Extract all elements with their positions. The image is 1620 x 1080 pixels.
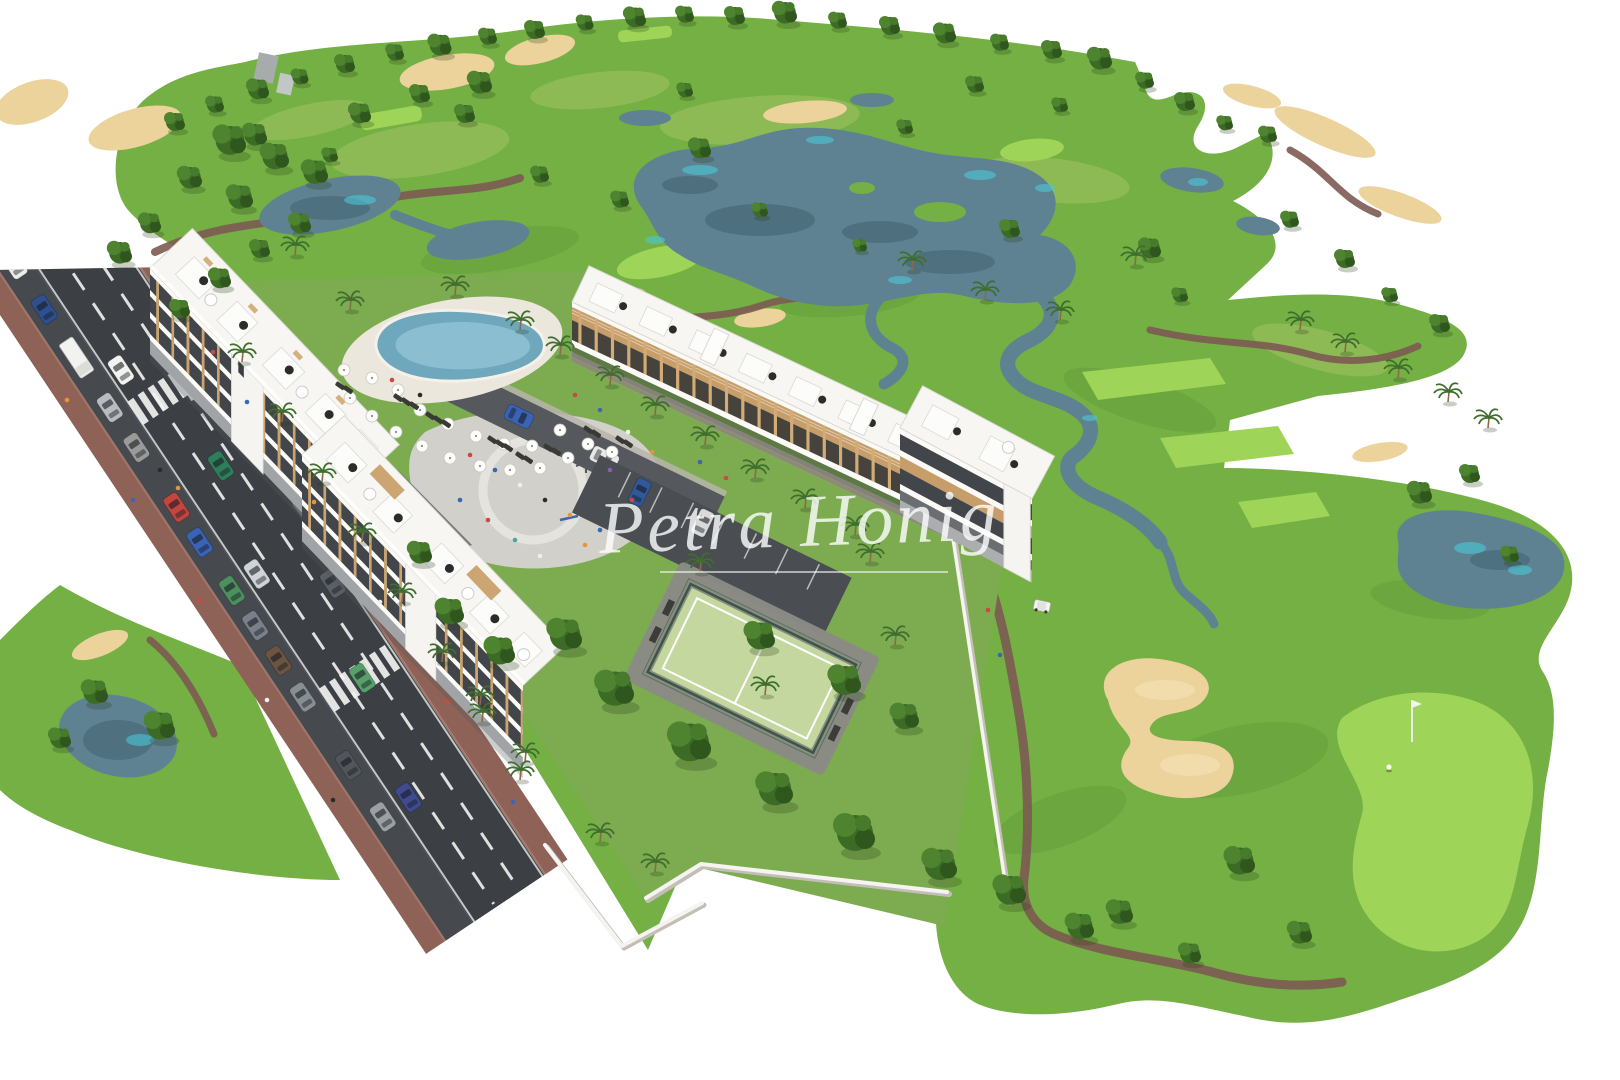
person (445, 700, 450, 705)
umbrella-icon (444, 452, 456, 464)
person (986, 608, 991, 613)
umbrella-icon (534, 462, 546, 474)
watermark: Petra Honig (596, 474, 1001, 572)
person (211, 350, 216, 355)
aerial-render-golf-resort: Petra Honig (0, 0, 1620, 1080)
umbrella-icon (526, 440, 538, 452)
person (390, 378, 395, 383)
umbrella-icon (366, 410, 378, 422)
person (650, 450, 655, 455)
umbrella-icon (474, 460, 486, 472)
person (538, 554, 543, 559)
person (378, 600, 383, 605)
person (158, 468, 163, 473)
person (583, 543, 588, 548)
umbrella-icon (554, 424, 566, 436)
person (198, 598, 203, 603)
person (573, 393, 578, 398)
person (698, 460, 703, 465)
person (458, 498, 463, 503)
umbrella-icon (504, 464, 516, 476)
golfer (1386, 764, 1391, 769)
person (331, 798, 336, 803)
umbrella-icon (366, 372, 378, 384)
person (245, 400, 250, 405)
umbrella-icon (392, 384, 404, 396)
umbrella-icon (470, 430, 482, 442)
person (598, 408, 603, 413)
umbrella-icon (416, 440, 428, 452)
person (312, 500, 317, 505)
umbrella-icon (562, 452, 574, 464)
person (176, 486, 181, 491)
person (65, 398, 70, 403)
person (626, 430, 631, 435)
person (486, 518, 491, 523)
person (511, 800, 516, 805)
person (543, 498, 548, 503)
umbrella-icon (582, 438, 594, 450)
person (265, 698, 270, 703)
watermark-text: Petra Honig (596, 474, 1001, 570)
umbrella-icon (390, 426, 402, 438)
person (131, 498, 136, 503)
person (468, 453, 473, 458)
person (724, 476, 729, 481)
person (568, 513, 573, 518)
person (998, 653, 1003, 658)
main-green (1337, 692, 1533, 951)
person (518, 483, 523, 488)
person (418, 393, 423, 398)
person (513, 538, 518, 543)
umbrella-icon (338, 364, 350, 376)
person (608, 468, 613, 473)
person (493, 468, 498, 473)
umbrella-icon (606, 446, 618, 458)
scene-canvas: Petra Honig (0, 0, 1620, 1080)
